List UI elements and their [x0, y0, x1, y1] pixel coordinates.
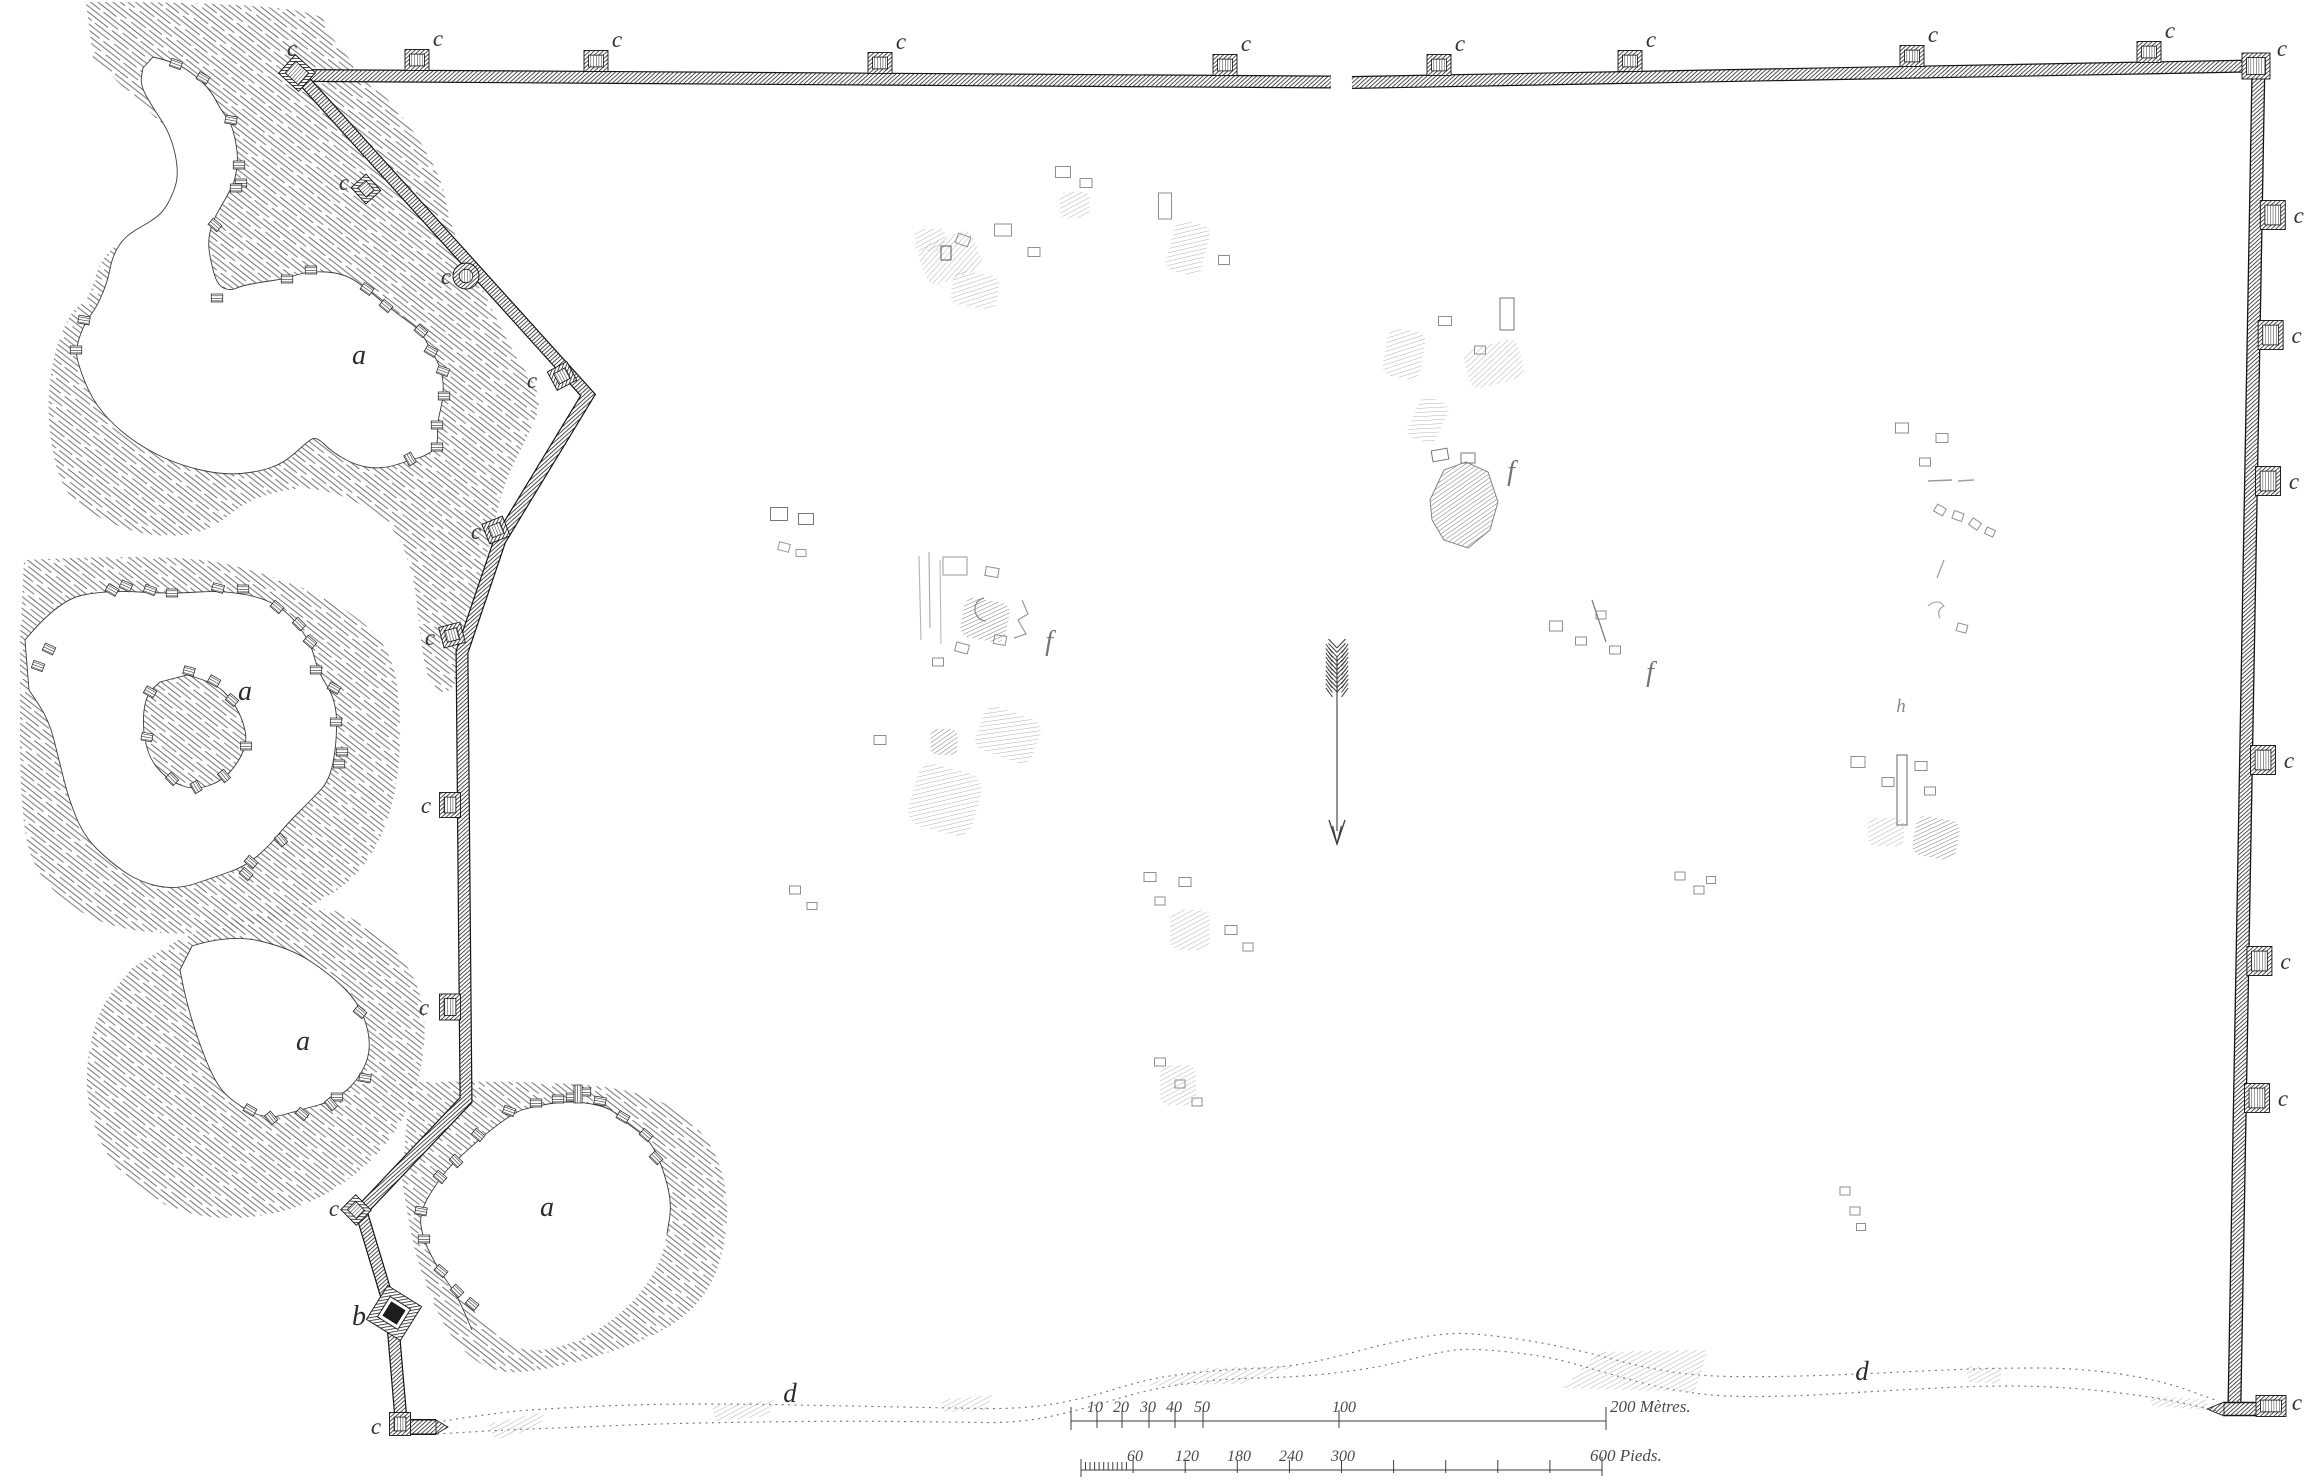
svg-text:c: c — [1928, 22, 1938, 47]
svg-text:c: c — [441, 264, 451, 289]
svg-text:c: c — [2165, 18, 2175, 43]
svg-text:a: a — [352, 340, 366, 371]
svg-text:40: 40 — [1166, 1399, 1182, 1416]
svg-text:200 Mètres.: 200 Mètres. — [1610, 1397, 1691, 1416]
svg-text:c: c — [433, 26, 443, 51]
svg-text:c: c — [2278, 1086, 2288, 1111]
svg-text:c: c — [1455, 31, 1465, 56]
svg-text:30: 30 — [1139, 1399, 1156, 1416]
svg-text:c: c — [329, 1196, 339, 1221]
svg-text:c: c — [419, 995, 429, 1020]
svg-text:20: 20 — [1113, 1399, 1129, 1416]
svg-text:120: 120 — [1175, 1448, 1199, 1465]
svg-text:c: c — [612, 27, 622, 52]
svg-text:c: c — [1646, 27, 1656, 52]
svg-text:c: c — [421, 793, 431, 818]
svg-text:b: b — [352, 1301, 366, 1332]
svg-text:c: c — [527, 368, 537, 393]
svg-text:a: a — [296, 1026, 310, 1057]
svg-text:180: 180 — [1227, 1448, 1251, 1465]
svg-text:600 Pieds.: 600 Pieds. — [1590, 1446, 1662, 1465]
svg-text:c: c — [371, 1414, 381, 1439]
svg-text:c: c — [339, 170, 349, 195]
svg-text:c: c — [2289, 469, 2299, 494]
svg-text:240: 240 — [1279, 1448, 1303, 1465]
svg-text:c: c — [1241, 31, 1251, 56]
svg-text:c: c — [2292, 323, 2302, 348]
svg-text:h: h — [1896, 696, 1906, 717]
svg-text:60: 60 — [1127, 1448, 1143, 1465]
svg-text:100: 100 — [1332, 1399, 1356, 1416]
svg-text:d: d — [1855, 1356, 1869, 1386]
svg-text:a: a — [238, 676, 252, 707]
svg-text:c: c — [471, 519, 481, 544]
svg-text:c: c — [2292, 1390, 2302, 1415]
svg-text:a: a — [540, 1192, 554, 1223]
svg-text:c: c — [2294, 203, 2304, 228]
svg-text:c: c — [287, 36, 297, 61]
svg-text:c: c — [2280, 949, 2290, 974]
svg-text:c: c — [896, 29, 906, 54]
svg-text:300: 300 — [1330, 1448, 1355, 1465]
svg-text:c: c — [2277, 36, 2287, 61]
svg-text:10: 10 — [1087, 1399, 1103, 1416]
svg-text:d: d — [783, 1378, 797, 1408]
svg-text:50: 50 — [1194, 1399, 1210, 1416]
svg-text:c: c — [425, 625, 435, 650]
svg-text:c: c — [2284, 748, 2294, 773]
